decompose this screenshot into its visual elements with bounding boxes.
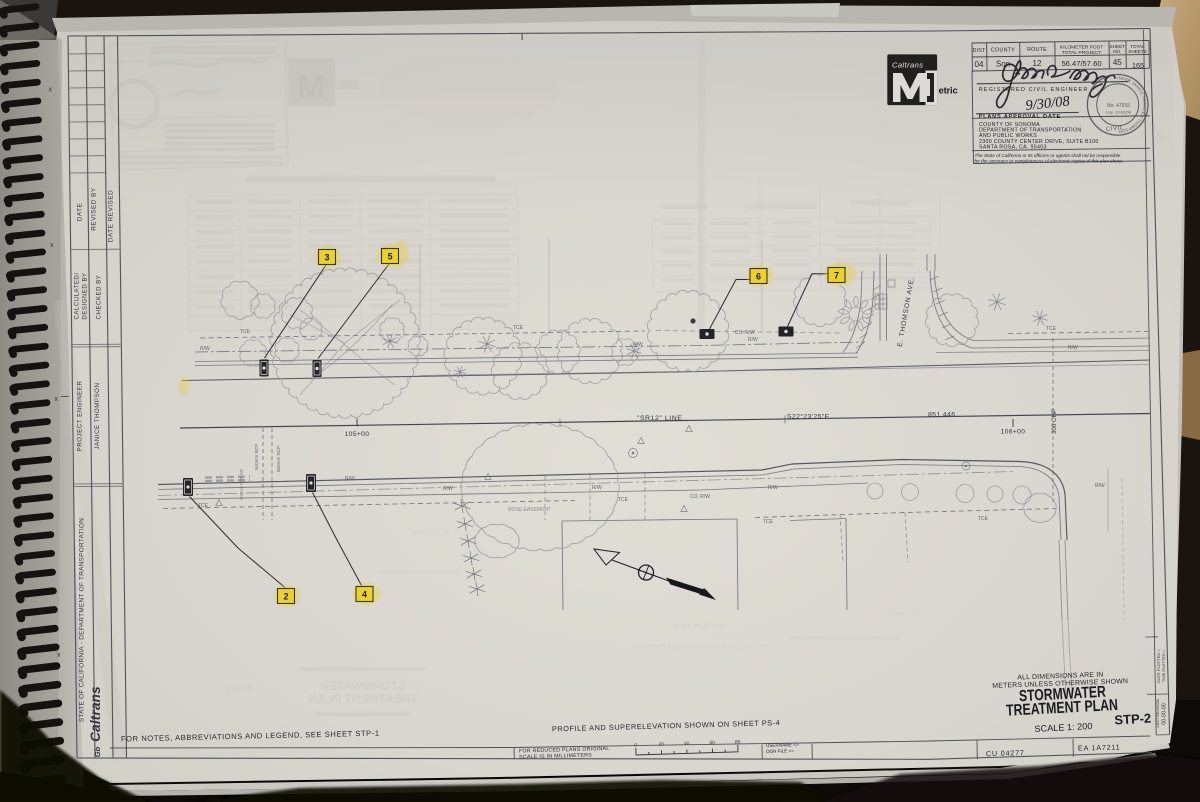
svg-text:STANDARD FILTERRA INLET OPENIN: STANDARD FILTERRA INLET OPENING [631, 643, 769, 652]
svg-text:DATE REVISED: DATE REVISED [108, 190, 115, 242]
svg-text:105+00: 105+00 [345, 431, 370, 438]
svg-text:"SR12" LINE: "SR12" LINE [637, 415, 682, 422]
svg-text:ROUTE: ROUTE [1027, 47, 1047, 53]
svg-text:6: 6 [756, 272, 761, 282]
svg-text:Exp. 12/31/08: Exp. 12/31/08 [1106, 110, 1131, 115]
svg-text:800mm RCP: 800mm RCP [276, 446, 281, 472]
svg-text:STP-1: STP-1 [225, 684, 254, 695]
svg-text:TOTAL PROJECT: TOTAL PROJECT [1062, 50, 1101, 56]
svg-text:CU 04277: CU 04277 [986, 748, 1025, 758]
svg-text:TCE: TCE [763, 519, 774, 525]
svg-text:R/W: R/W [768, 485, 778, 491]
svg-text:Gb: Gb [93, 746, 102, 757]
svg-text:45: 45 [1113, 58, 1122, 67]
svg-text:CHECKED BY: CHECKED BY [96, 275, 103, 320]
svg-text:DGN FILE =>: DGN FILE => [766, 748, 794, 754]
svg-text:x: x [49, 87, 53, 94]
svg-text:Caltrans: Caltrans [892, 61, 923, 70]
svg-text:500mm RCP: 500mm RCP [254, 444, 259, 470]
svg-text:DESIGNED BY: DESIGNED BY [82, 272, 89, 319]
svg-text:106+00: 106+00 [1001, 429, 1026, 436]
svg-text:20: 20 [658, 742, 664, 748]
svg-text:80: 80 [735, 739, 741, 745]
svg-text:PLANS APPROVAL DATE: PLANS APPROVAL DATE [979, 114, 1061, 120]
svg-text:TCE: TCE [618, 497, 629, 503]
svg-text:DIST: DIST [972, 48, 986, 54]
svg-text:REVISED BY: REVISED BY [91, 187, 98, 231]
svg-text:LAST REVISION: LAST REVISION [1156, 698, 1160, 727]
svg-text:300 CHP: 300 CHP [1051, 409, 1058, 434]
svg-text:851.446: 851.446 [928, 412, 955, 419]
svg-text:ROSE EASEMENT: ROSE EASEMENT [508, 507, 551, 513]
svg-text:USERNAME =>: USERNAME => [766, 742, 799, 748]
svg-text:JANICE THOMPSON: JANICE THOMPSON [94, 383, 101, 450]
svg-text:x: x [50, 242, 54, 249]
svg-text:TREATMENT PLAN: TREATMENT PLAN [308, 692, 417, 706]
svg-text:R/W: R/W [1095, 483, 1105, 489]
svg-text:No. 47915: No. 47915 [1107, 103, 1130, 109]
svg-text:R/W: R/W [345, 476, 355, 482]
svg-text:REGISTERED CIVIL ENGINEER: REGISTERED CIVIL ENGINEER [979, 87, 1089, 93]
svg-text:CO. R/W: CO. R/W [690, 494, 710, 500]
svg-text:R/W: R/W [592, 485, 602, 491]
svg-text:7: 7 [834, 271, 839, 281]
svg-text:SECTION VIEW: SECTION VIEW [672, 621, 728, 630]
svg-text:00-00-00: 00-00-00 [1161, 703, 1167, 725]
svg-text:40: 40 [684, 741, 690, 747]
svg-text:The State of California or its: The State of California or its officers … [975, 153, 1121, 158]
svg-text:etric: etric [939, 86, 958, 97]
svg-text:300mm RCP DR: 300mm RCP DR [239, 469, 244, 500]
svg-text:TCE: TCE [1046, 326, 1057, 332]
svg-text:STATE OF CALIFORNIA - DEPART: STATE OF CALIFORNIA - DEPARTMENT OF TRAN… [79, 518, 86, 722]
svg-text:2: 2 [283, 592, 288, 602]
svg-text:R/W: R/W [200, 346, 210, 352]
svg-text:DATE: DATE [77, 203, 84, 222]
svg-text:KEY MAP: KEY MAP [889, 612, 920, 619]
svg-text:COUNTY: COUNTY [991, 48, 1015, 54]
svg-text:60: 60 [709, 740, 715, 746]
svg-text:12: 12 [1033, 59, 1042, 68]
svg-text:R/W: R/W [748, 337, 758, 343]
svg-text:STP-2: STP-2 [1114, 711, 1152, 728]
svg-text:56.47/57.60: 56.47/57.60 [1061, 59, 1101, 68]
svg-text:CALCULATED/: CALCULATED/ [74, 272, 81, 319]
svg-text:S22°23'25"E: S22°23'25"E [787, 413, 830, 421]
svg-text:STORMWATER: STORMWATER [320, 679, 406, 693]
svg-text:04: 04 [975, 60, 984, 69]
svg-text:165: 165 [1132, 61, 1144, 70]
svg-text:TCE: TCE [513, 325, 524, 331]
svg-text:4: 4 [362, 590, 367, 600]
svg-text:5: 5 [387, 252, 392, 262]
svg-text:CO. R/W: CO. R/W [735, 330, 755, 336]
svg-text:R/W: R/W [1068, 345, 1078, 351]
svg-text:TCE: TCE [198, 503, 209, 509]
svg-text:R/W: R/W [443, 486, 453, 492]
svg-text:TCE: TCE [240, 329, 251, 335]
svg-text:x: x [57, 652, 61, 659]
svg-text:Caltrans: Caltrans [88, 686, 103, 742]
svg-text:KILOMETER POST: KILOMETER POST [1060, 45, 1103, 51]
svg-text:TCE: TCE [978, 516, 989, 522]
svg-text:PLAN VIEW: PLAN VIEW [411, 530, 450, 537]
svg-text:NO.: NO. [1113, 49, 1121, 54]
svg-text:EA 1A7211: EA 1A7211 [1078, 742, 1121, 752]
svg-text:SHEETS: SHEETS [1128, 49, 1146, 54]
svg-text:PROJECT ENGINEER: PROJECT ENGINEER [77, 381, 84, 452]
svg-text:for the accuracy or completene: for the accuracy or completeness of elec… [975, 158, 1124, 163]
svg-text:3: 3 [324, 253, 329, 263]
svg-text:SANTA ROSA, CA. 95403: SANTA ROSA, CA. 95403 [979, 144, 1047, 150]
svg-text:x: x [55, 396, 59, 403]
svg-text:TIME PLOTTED =: TIME PLOTTED = [1161, 649, 1166, 682]
